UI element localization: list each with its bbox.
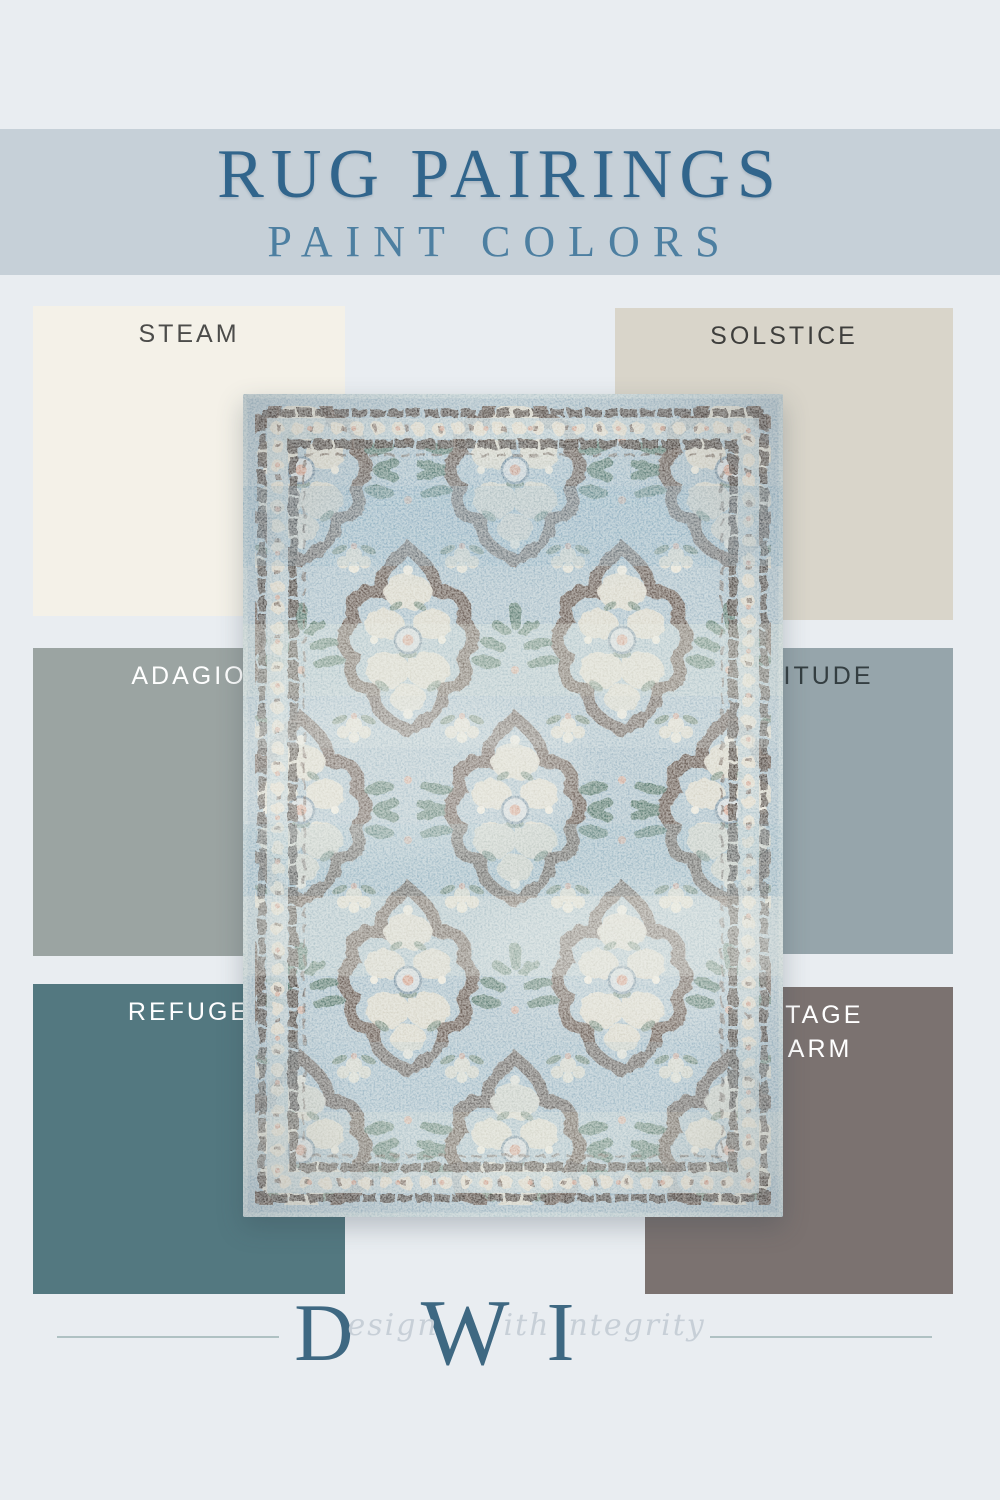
swatch-label-refuge: REFUGE xyxy=(128,996,250,1294)
logo-initial-d: D xyxy=(294,1292,353,1374)
rug-pairings-graphic: RUG PAIRINGS PAINT COLORS STEAM SOLSTICE… xyxy=(0,0,1000,1500)
brand-logo: D esign W ith I ntegrity xyxy=(0,1288,1000,1378)
logo-script-ntegrity: ntegrity xyxy=(568,1308,705,1343)
header-band: RUG PAIRINGS PAINT COLORS xyxy=(0,129,1000,275)
page-title: RUG PAIRINGS xyxy=(217,140,783,210)
rug-image xyxy=(243,394,783,1217)
logo-script-esign: esign xyxy=(347,1308,438,1343)
swatch-label-adagio: ADAGIO xyxy=(131,660,246,956)
logo-script-ith: ith xyxy=(503,1308,550,1343)
page-subtitle: PAINT COLORS xyxy=(267,220,732,264)
swatch-label-steam: STEAM xyxy=(138,318,239,616)
